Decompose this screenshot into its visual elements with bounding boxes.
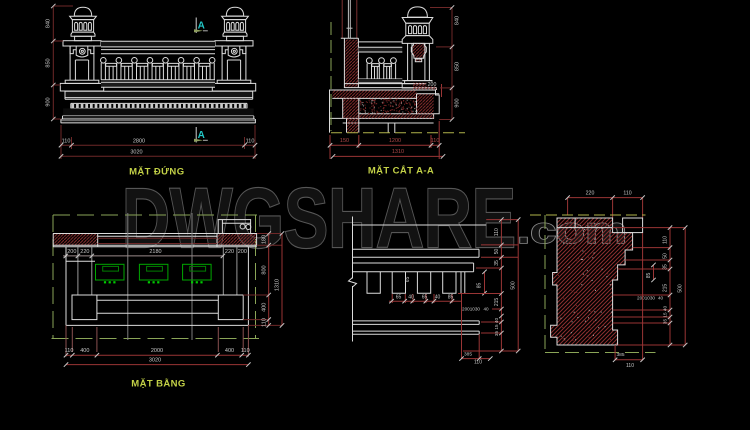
svg-text:65: 65 (405, 277, 411, 283)
svg-text:150: 150 (340, 138, 349, 144)
svg-text:2001030: 2001030 (462, 306, 480, 311)
svg-text:400: 400 (225, 348, 234, 354)
svg-text:215: 215 (662, 284, 668, 293)
svg-text:110: 110 (261, 318, 267, 327)
svg-text:840: 840 (455, 16, 461, 25)
svg-text:85: 85 (646, 273, 652, 279)
svg-text:385: 385 (616, 352, 624, 358)
svg-text:2180: 2180 (149, 249, 161, 255)
svg-text:DWGSHARE: DWGSHARE (122, 171, 516, 265)
svg-text:A: A (198, 130, 205, 141)
svg-text:35: 35 (494, 331, 499, 337)
svg-text:50: 50 (662, 253, 668, 259)
svg-text:35: 35 (662, 264, 668, 270)
svg-text:200: 200 (67, 249, 76, 255)
svg-text:15: 15 (494, 324, 499, 330)
svg-text:215: 215 (494, 298, 500, 307)
svg-text:2001030: 2001030 (637, 296, 655, 301)
svg-text:110: 110 (62, 139, 71, 145)
svg-text:2800: 2800 (133, 139, 145, 145)
svg-text:40: 40 (408, 294, 414, 300)
svg-text:385: 385 (464, 351, 472, 357)
svg-text:A: A (198, 20, 205, 31)
svg-text:40: 40 (658, 296, 664, 301)
svg-text:2000: 2000 (151, 348, 163, 354)
svg-text:40: 40 (662, 306, 667, 312)
svg-text:180: 180 (261, 235, 267, 244)
svg-text:400: 400 (261, 303, 267, 312)
svg-text:85: 85 (448, 294, 454, 300)
svg-text:40: 40 (435, 294, 441, 300)
svg-text:65: 65 (422, 294, 428, 300)
svg-text:MẶT ĐỨNG: MẶT ĐỨNG (129, 166, 184, 178)
svg-text:35: 35 (662, 319, 667, 325)
svg-text:40: 40 (494, 318, 499, 324)
svg-text:3020: 3020 (149, 357, 161, 363)
svg-text:220: 220 (225, 249, 234, 255)
svg-text:110: 110 (626, 363, 634, 369)
svg-text:85: 85 (477, 283, 483, 289)
svg-text:110: 110 (474, 360, 482, 366)
svg-text:40: 40 (483, 306, 489, 311)
svg-text:850: 850 (455, 62, 461, 71)
svg-text:110: 110 (623, 190, 631, 196)
svg-text:MẶT BẰNG: MẶT BẰNG (131, 379, 185, 390)
svg-text:1310: 1310 (392, 149, 404, 155)
svg-text:50: 50 (494, 249, 500, 255)
svg-text:110: 110 (494, 228, 500, 236)
svg-text:110: 110 (65, 348, 74, 354)
svg-text:800: 800 (261, 265, 267, 274)
svg-text:15: 15 (662, 312, 667, 318)
svg-text:840: 840 (46, 19, 52, 28)
svg-text:3020: 3020 (130, 149, 142, 155)
svg-text:200: 200 (428, 82, 437, 88)
svg-text:850: 850 (46, 58, 52, 67)
svg-text:900: 900 (46, 97, 52, 106)
svg-text:MẶT CẮT A-A: MẶT CẮT A-A (368, 166, 434, 177)
svg-text:220: 220 (80, 249, 89, 255)
svg-text:1200: 1200 (389, 138, 401, 144)
svg-text:200: 200 (238, 249, 247, 255)
svg-text:400: 400 (80, 348, 89, 354)
svg-text:220: 220 (586, 190, 595, 196)
svg-text:500: 500 (511, 281, 517, 290)
svg-text:1310: 1310 (275, 279, 281, 291)
svg-text:900: 900 (455, 98, 461, 107)
svg-text:65: 65 (396, 294, 402, 300)
svg-text:35: 35 (494, 260, 500, 266)
svg-text:500: 500 (678, 284, 684, 293)
svg-text:110: 110 (662, 236, 668, 244)
svg-text:110: 110 (246, 139, 255, 145)
svg-text:110: 110 (431, 138, 440, 144)
svg-text:110: 110 (241, 348, 250, 354)
